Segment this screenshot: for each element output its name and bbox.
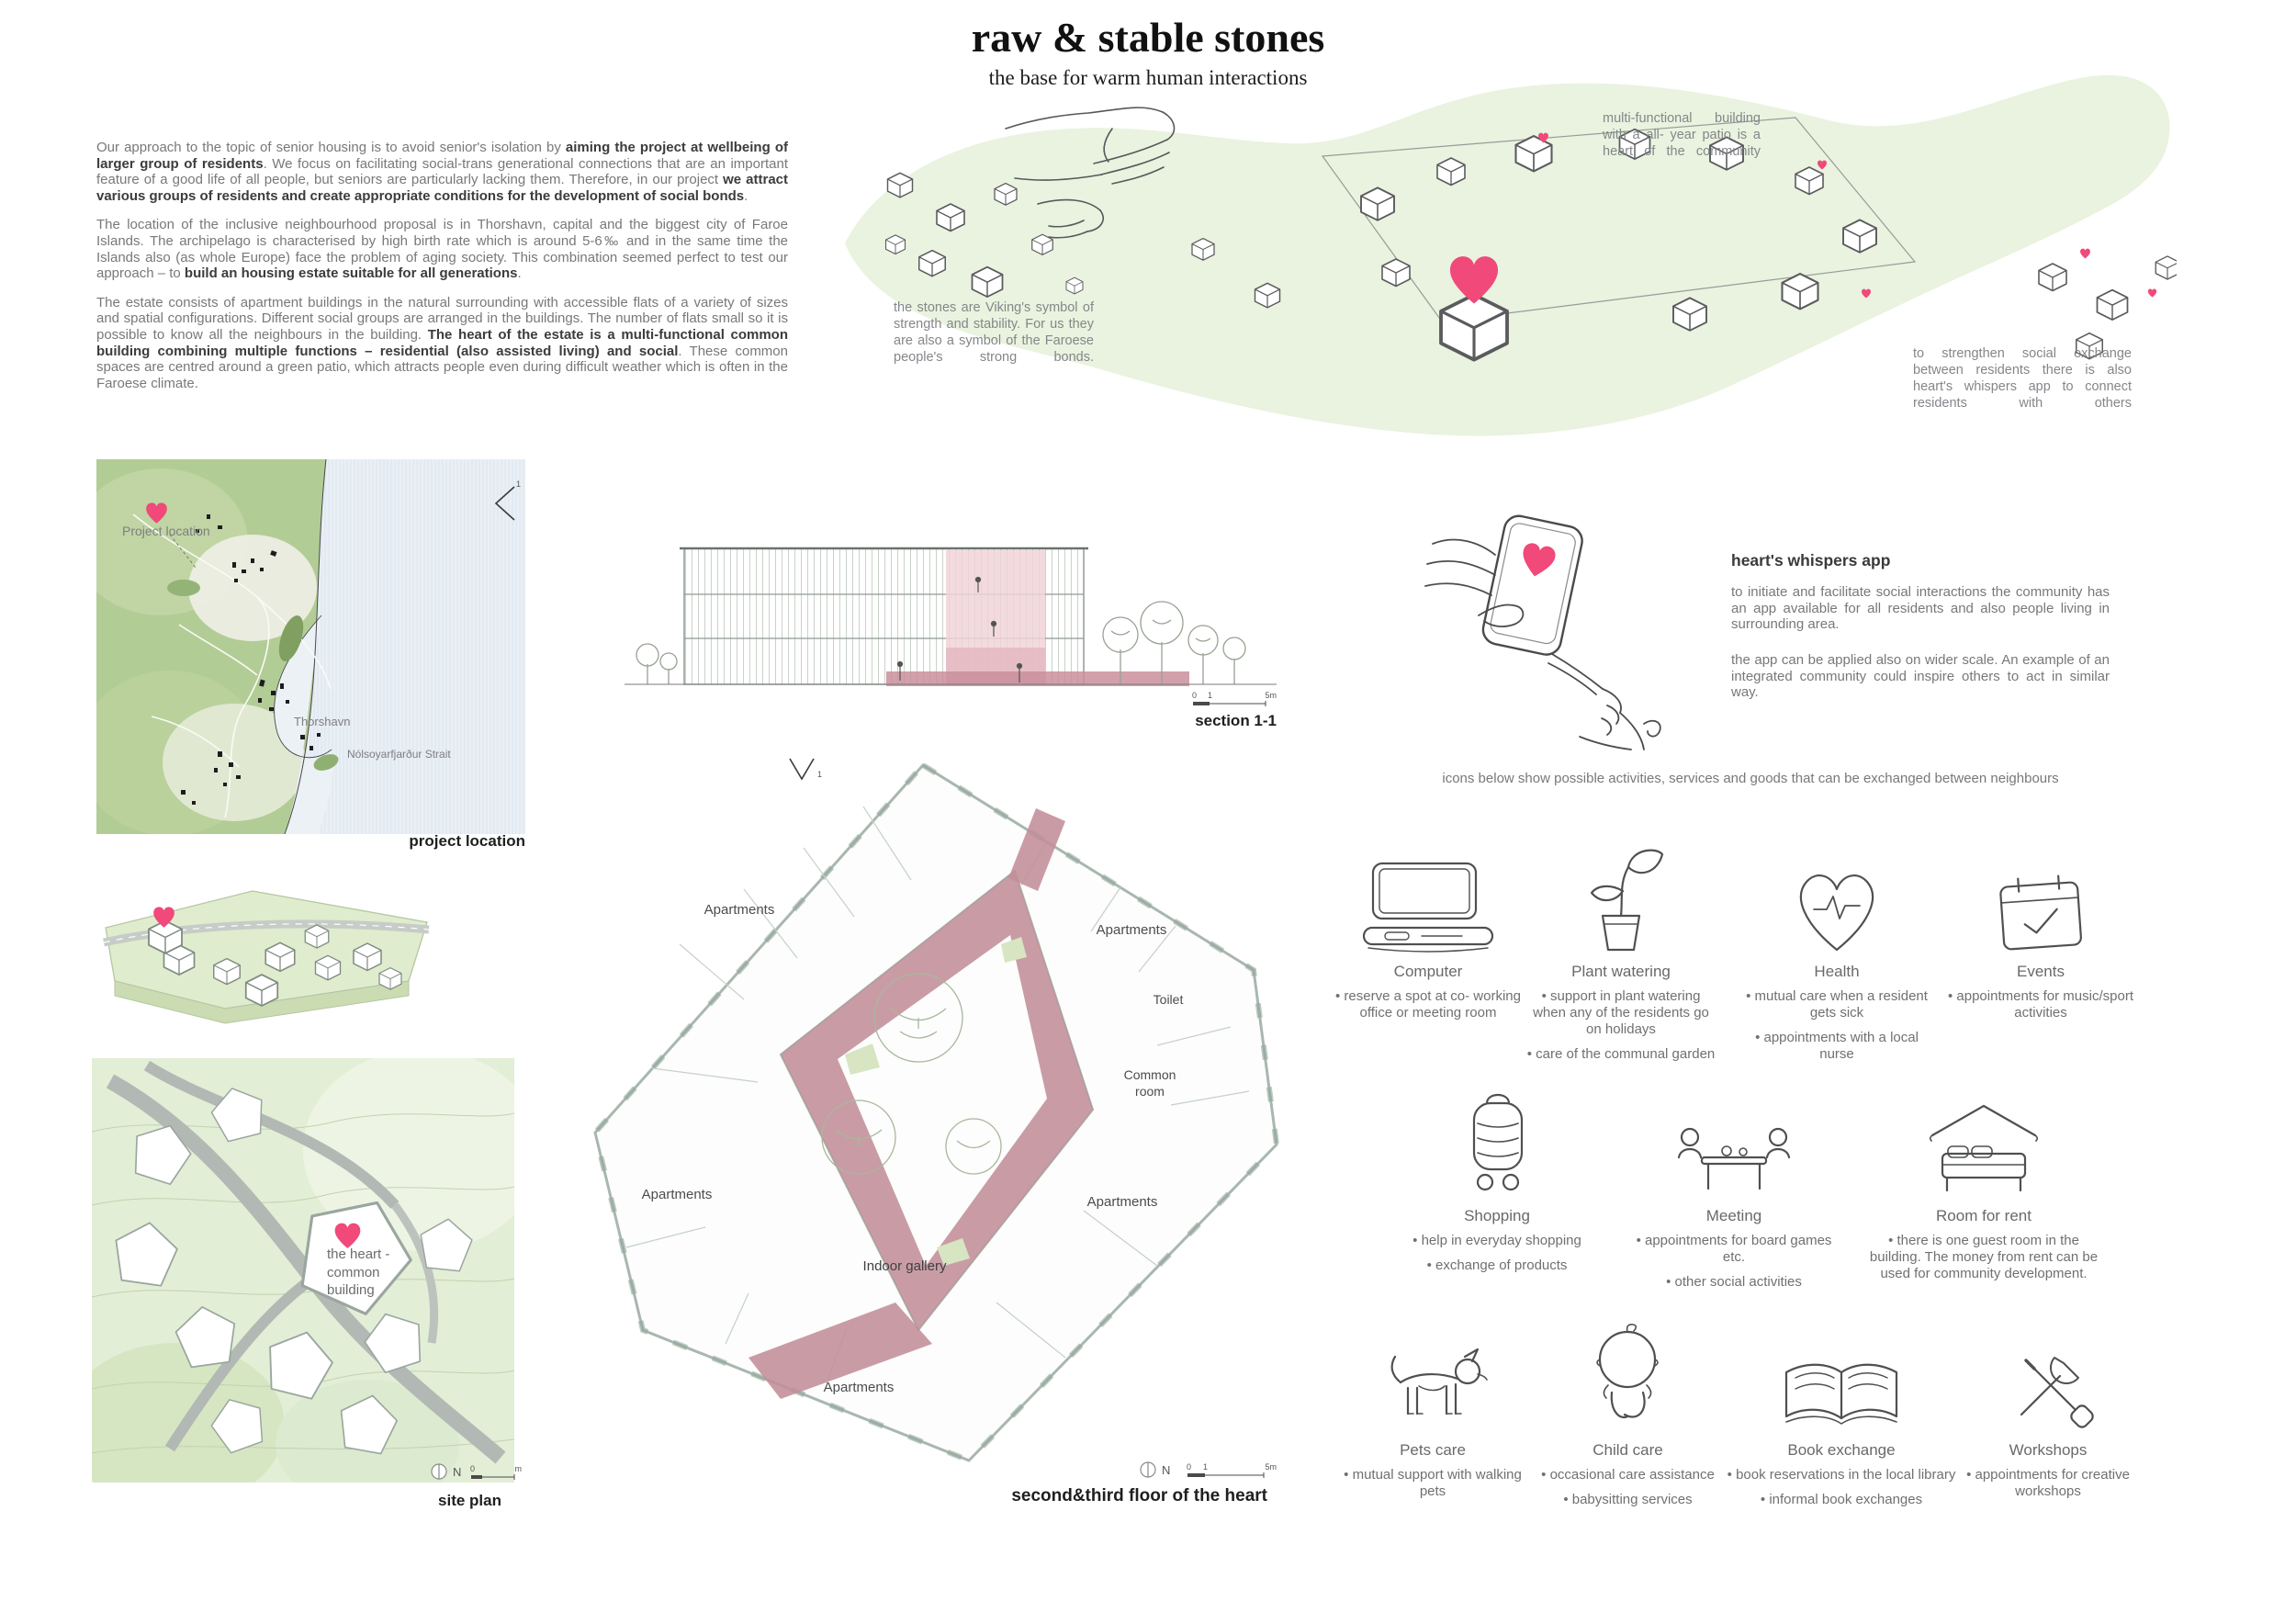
floor-plan-north: N	[1139, 1460, 1170, 1479]
note-app: to strengthen social exchange between re…	[1913, 345, 2132, 412]
exchange-item-bullets: appointments for creative workshops	[1942, 1467, 2154, 1500]
exchange-item-events: Events appointments for music/sport acti…	[1940, 818, 2142, 1030]
estate-axonometric-sketch	[87, 871, 445, 1034]
room-for-rent-icon	[1919, 1100, 2048, 1201]
poster-board: raw & stable stones the base for warm hu…	[0, 0, 2296, 1624]
workshops-icon	[1996, 1330, 2101, 1436]
map-label-strait: Nólsoyarfjarður Strait	[347, 748, 451, 761]
exchange-item-title: Child care	[1529, 1441, 1727, 1460]
plan-label-apartments: Apartments	[1087, 1194, 1158, 1210]
floor-plan-drawing	[569, 751, 1295, 1477]
exchange-item-title: Computer	[1334, 963, 1523, 981]
intro-paragraph-2: The location of the inclusive neighbourh…	[96, 217, 788, 281]
scalebar-graphic	[470, 1474, 522, 1482]
exchange-item-bullets: mutual care when a resident gets sick ap…	[1739, 988, 1935, 1063]
exchange-item-title: Room for rent	[1869, 1207, 2099, 1225]
section-drawing	[625, 537, 1277, 712]
app-paragraph-1: to initiate and facilitate social intera…	[1731, 584, 2110, 633]
plan-label-apartments: Apartments	[704, 902, 775, 918]
site-plan-drawing	[92, 1058, 514, 1483]
scalebar-graphic	[1192, 701, 1277, 708]
exchange-item-child-care: Child care occasional care assistance ba…	[1529, 1300, 1727, 1517]
plan-label-indoor-gallery: Indoor gallery	[863, 1258, 947, 1274]
plan-label-apartments: Apartments	[1097, 922, 1167, 938]
exchange-item-title: Meeting	[1624, 1207, 1844, 1225]
floor-plan-caption: second&third floor of the heart	[918, 1486, 1267, 1506]
building-outline	[595, 765, 1277, 1460]
site-heart-label: the heart - common building	[327, 1246, 397, 1300]
child-care-icon	[1584, 1321, 1671, 1436]
exchange-item-bullets: support in plant watering when any of th…	[1525, 988, 1717, 1063]
exchange-item-meeting: Meeting appointments for board games etc…	[1624, 1077, 1844, 1299]
exchange-item-bullets: occasional care assistance babysitting s…	[1529, 1467, 1727, 1508]
exchange-item-bullets: appointments for music/sport activities	[1940, 988, 2142, 1021]
floor-plan-scalebar: 0 1 5m	[1187, 1462, 1277, 1483]
meeting-icon	[1670, 1110, 1798, 1201]
exchange-item-shopping: Shopping help in everyday shopping excha…	[1396, 1077, 1598, 1282]
exchange-item-workshops: Workshops appointments for creative work…	[1942, 1300, 2154, 1508]
exchange-item-computer: Computer reserve a spot at co- working o…	[1334, 818, 1523, 1030]
north-arrow-icon	[1139, 1460, 1157, 1479]
exchange-item-title: Workshops	[1942, 1441, 2154, 1460]
exchange-item-room-for-rent: Room for rent there is one guest room in…	[1869, 1077, 2099, 1291]
location-map	[96, 459, 525, 834]
app-hands-illustration	[1414, 507, 1671, 751]
plan-label-apartments: Apartments	[642, 1187, 713, 1202]
exchange-item-bullets: book reservations in the local library i…	[1722, 1467, 1961, 1508]
exchange-item-title: Events	[1940, 963, 2142, 981]
exchange-item-bullets: reserve a spot at co- working office or …	[1334, 988, 1523, 1021]
exchange-intro: icons below show possible activities, se…	[1332, 771, 2169, 786]
pointing-hand-sketch	[1548, 654, 1660, 750]
computer-icon	[1359, 856, 1497, 957]
site-plan-scalebar: 0 m	[470, 1464, 522, 1484]
intro-text: Our approach to the topic of senior hous…	[96, 140, 788, 404]
app-heading: heart's whispers app	[1731, 551, 1890, 570]
exchange-item-plant-watering: Plant watering support in plant watering…	[1525, 818, 1717, 1071]
health-icon	[1786, 865, 1887, 957]
site-plan-north: N	[430, 1462, 461, 1481]
shopping-icon	[1454, 1087, 1541, 1201]
exchange-item-bullets: help in everyday shopping exchange of pr…	[1396, 1233, 1598, 1274]
stones-cluster-right	[2039, 256, 2177, 359]
map-label-city: Thorshavn	[294, 715, 350, 728]
section-scalebar: 0 1 5m	[1192, 691, 1277, 711]
phone-outline	[1480, 513, 1585, 658]
section-cut-number: 1	[817, 770, 822, 779]
app-paragraph-2: the app can be applied also on wider sca…	[1731, 652, 2110, 701]
plan-label-toilet: Toilet	[1154, 992, 1184, 1007]
exchange-item-health: Health mutual care when a resident gets …	[1739, 818, 1935, 1071]
note-building: multi-functional building with a all- ye…	[1603, 110, 1761, 160]
exchange-item-title: Health	[1739, 963, 1935, 981]
page-title: raw & stable stones	[0, 13, 2296, 62]
events-icon	[1995, 870, 2087, 957]
intro-paragraph-1: Our approach to the topic of senior hous…	[96, 140, 788, 204]
exchange-item-title: Book exchange	[1722, 1441, 1961, 1460]
exchange-item-bullets: there is one guest room in the building.…	[1869, 1233, 2099, 1282]
map-caption: project location	[342, 832, 525, 851]
north-arrow-icon	[430, 1462, 448, 1481]
site-plan-caption: site plan	[364, 1492, 501, 1510]
scalebar-graphic	[1187, 1472, 1277, 1480]
plan-label-common-room: Common room	[1118, 1067, 1182, 1100]
book-exchange-icon	[1777, 1358, 1906, 1436]
map-label-project-location: Project location	[122, 524, 210, 538]
plant-watering-icon	[1575, 847, 1667, 957]
pets-care-icon	[1373, 1344, 1492, 1436]
exchange-item-title: Plant watering	[1525, 963, 1717, 981]
hero-stones-illustration	[808, 64, 2177, 496]
intro-paragraph-3: The estate consists of apartment buildin…	[96, 295, 788, 392]
exchange-item-book-exchange: Book exchange book reservations in the l…	[1722, 1300, 1961, 1517]
exchange-item-pets-care: Pets care mutual support with walking pe…	[1336, 1300, 1529, 1508]
section-caption: section 1-1	[1139, 712, 1277, 730]
exchange-item-title: Shopping	[1396, 1207, 1598, 1225]
section-cut-number: 1	[516, 479, 521, 489]
note-stones: the stones are Viking's symbol of streng…	[894, 299, 1094, 367]
plan-label-apartments: Apartments	[824, 1380, 895, 1395]
exchange-item-bullets: appointments for board games etc. other …	[1624, 1233, 1844, 1291]
exchange-item-bullets: mutual support with walking pets	[1336, 1467, 1529, 1500]
exchange-item-title: Pets care	[1336, 1441, 1529, 1460]
